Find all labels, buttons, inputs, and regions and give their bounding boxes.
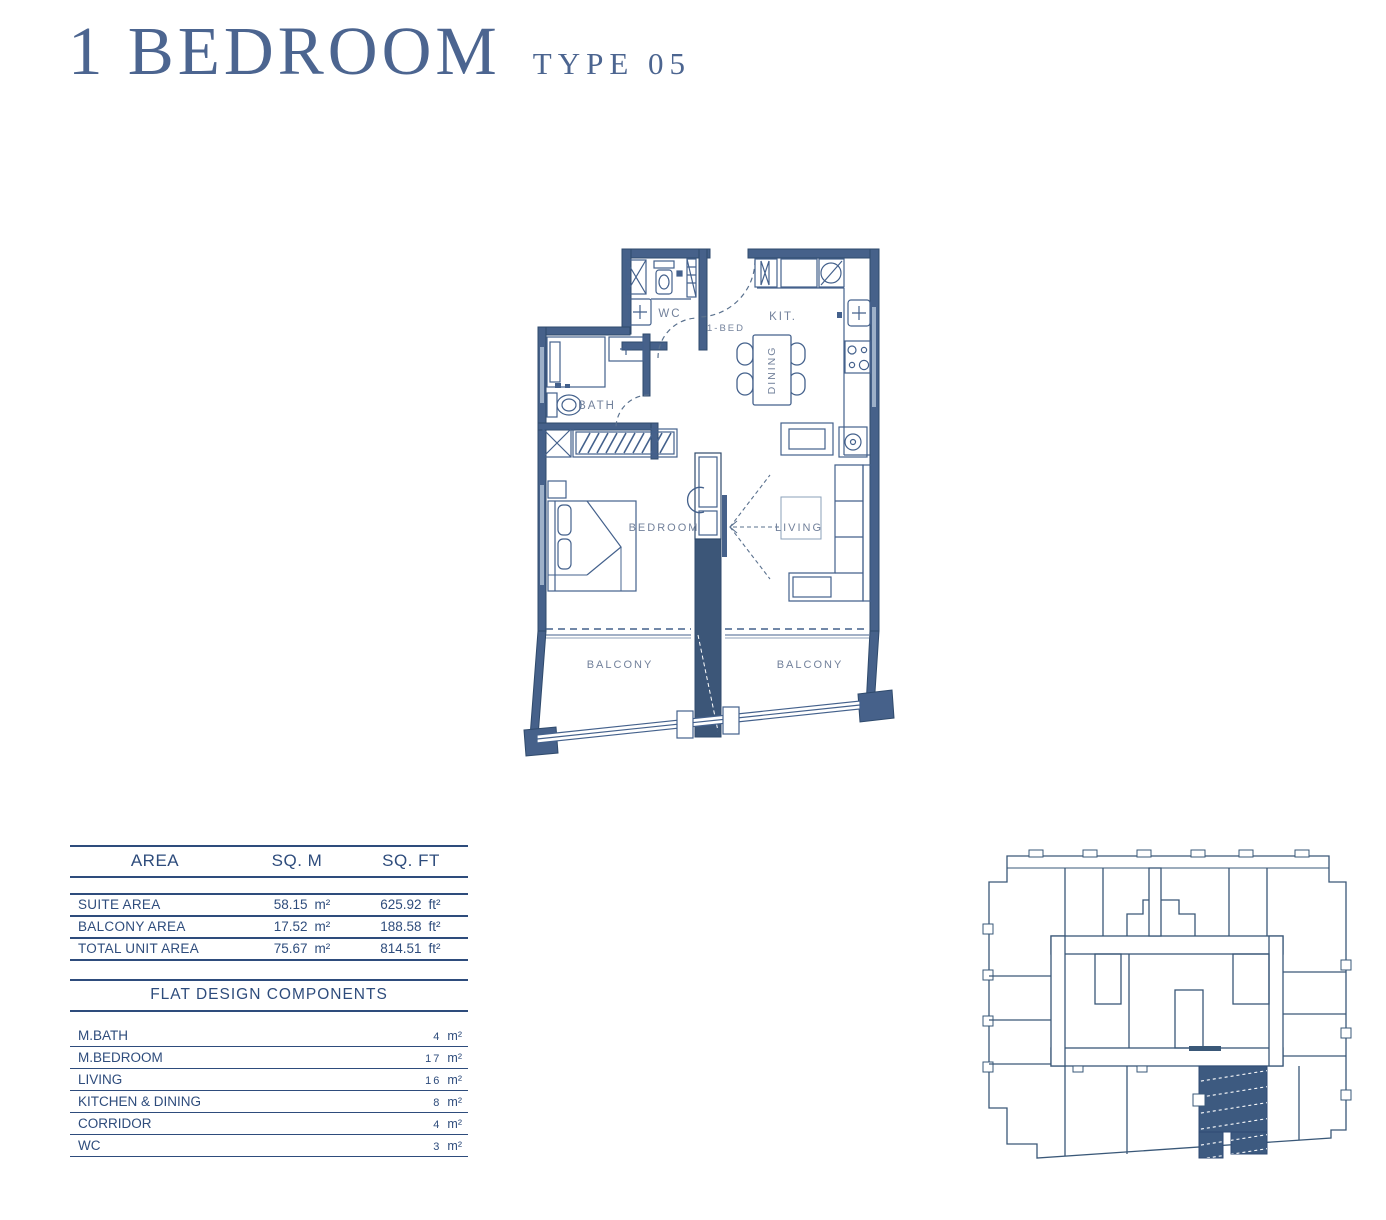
bedroom-bed	[548, 481, 636, 591]
col-header-sqm: SQ. M	[240, 851, 354, 871]
area-table-header: AREA SQ. M SQ. FT	[70, 845, 468, 878]
component-label: WC	[78, 1138, 101, 1153]
sqm-value: 75.67m²	[240, 941, 354, 956]
component-label: KITCHEN & DINING	[78, 1094, 201, 1109]
balcony-right-label: BALCONY	[777, 659, 844, 671]
floor-plan: WC 1-BED KIT. DINING BATH BEDROOM LIVING…	[523, 243, 903, 775]
stove-icon	[845, 341, 870, 373]
kitchen-label: KIT.	[769, 311, 797, 323]
sqm-value: 58.15m²	[240, 897, 354, 912]
tv-panel	[722, 495, 727, 557]
list-item: LIVING 16m²	[70, 1069, 468, 1091]
kitchen-sink-icon	[821, 261, 842, 285]
dining-label: DINING	[766, 346, 778, 395]
sqft-value: 625.92ft²	[354, 897, 468, 912]
row-label: TOTAL UNIT AREA	[70, 941, 240, 956]
component-value: 17m²	[425, 1051, 462, 1065]
component-value: 8m²	[433, 1095, 462, 1109]
table-row: BALCONY AREA 17.52m² 188.58ft²	[70, 917, 468, 939]
list-item: M.BEDROOM 17m²	[70, 1047, 468, 1069]
row-label: BALCONY AREA	[70, 919, 240, 934]
component-label: M.BEDROOM	[78, 1050, 163, 1065]
page-header: 1 BEDROOM TYPE 05	[68, 14, 691, 90]
component-value: 16m²	[425, 1073, 462, 1087]
building-outline	[983, 850, 1351, 1158]
list-item: KITCHEN & DINING 8m²	[70, 1091, 468, 1113]
sqm-value: 17.52m²	[240, 919, 354, 934]
sqft-value: 814.51ft²	[354, 941, 468, 956]
components-body: M.BATH 4m² M.BEDROOM 17m² LIVING 16m² KI…	[70, 1025, 468, 1157]
list-item: CORRIDOR 4m²	[70, 1113, 468, 1135]
area-table-body: SUITE AREA 58.15m² 625.92ft² BALCONY ARE…	[70, 893, 468, 961]
component-label: CORRIDOR	[78, 1116, 152, 1131]
components-title: FLAT DESIGN COMPONENTS	[70, 979, 468, 1012]
living-furniture	[781, 423, 871, 601]
components-table: FLAT DESIGN COMPONENTS M.BATH 4m² M.BEDR…	[70, 979, 468, 1157]
area-table: AREA SQ. M SQ. FT SUITE AREA 58.15m² 625…	[70, 845, 468, 961]
kitchen-appliance-icon	[837, 300, 870, 326]
col-header-area: AREA	[70, 851, 240, 871]
sqft-value: 188.58ft²	[354, 919, 468, 934]
structural-column	[695, 539, 721, 737]
table-row: SUITE AREA 58.15m² 625.92ft²	[70, 895, 468, 917]
bath-label: BATH	[578, 400, 616, 412]
unit-label: 1-BED	[707, 323, 745, 334]
component-value: 4m²	[433, 1117, 462, 1131]
row-label: SUITE AREA	[70, 897, 240, 912]
col-header-sqft: SQ. FT	[354, 851, 468, 871]
floor-plan-canvas: WC 1-BED KIT. DINING BATH BEDROOM LIVING…	[523, 243, 903, 775]
component-label: LIVING	[78, 1072, 122, 1087]
key-plan-canvas	[976, 842, 1368, 1186]
living-label: LIVING	[775, 522, 823, 534]
highlighted-unit	[1193, 1066, 1271, 1160]
page-title: 1 BEDROOM	[68, 14, 501, 90]
wc-label: WC	[658, 308, 681, 320]
page-subtitle: TYPE 05	[533, 46, 691, 82]
component-value: 4m²	[433, 1029, 462, 1043]
component-value: 3m²	[433, 1139, 462, 1153]
component-label: M.BATH	[78, 1028, 128, 1043]
key-plan	[976, 842, 1368, 1186]
list-item: WC 3m²	[70, 1135, 468, 1157]
list-item: M.BATH 4m²	[70, 1025, 468, 1047]
table-row: TOTAL UNIT AREA 75.67m² 814.51ft²	[70, 939, 468, 961]
balcony-left-label: BALCONY	[587, 659, 654, 671]
bedroom-label: BEDROOM	[629, 522, 700, 534]
tv-view-lines	[730, 475, 779, 579]
